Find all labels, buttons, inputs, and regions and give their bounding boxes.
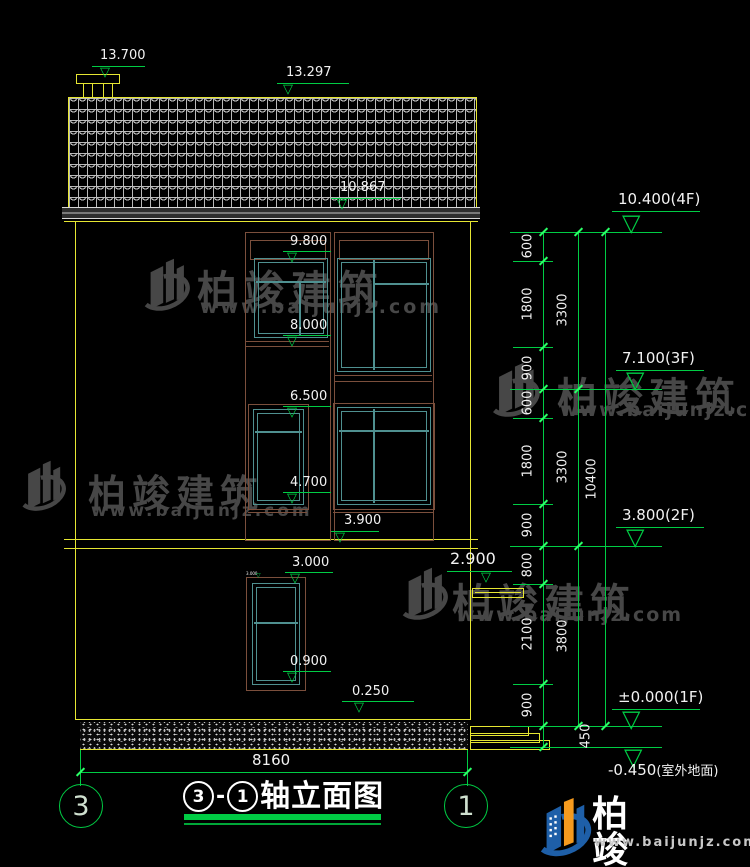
level-triangle-icon: ▽ <box>283 83 293 96</box>
entry-canopy-line <box>475 592 521 593</box>
level-label: 3.000 <box>292 556 329 569</box>
dim-line-subtotals <box>578 232 579 726</box>
level-label: 9.800 <box>290 235 327 248</box>
title-text: 轴立面图 <box>260 782 384 812</box>
sill-line <box>248 512 307 513</box>
dim-value: 8160 <box>252 753 290 768</box>
dim-line-segments <box>543 232 544 747</box>
level-triangle-icon: ▽ <box>287 406 297 419</box>
entry-step <box>470 740 550 750</box>
level-triangle-icon: ▽ <box>622 211 640 235</box>
entry-canopy <box>472 588 524 598</box>
window-mullion <box>375 283 429 285</box>
eave-fascia-band <box>62 207 480 219</box>
level-triangle-icon: ▽ <box>626 368 644 392</box>
axis-number: 3 <box>72 791 89 822</box>
wall-bottom-line <box>75 719 470 720</box>
level-triangle-icon: ▽ <box>287 492 297 505</box>
level-label: 4.700 <box>290 476 327 489</box>
window-mullion <box>255 431 302 433</box>
level-label: ±0.000(1F) <box>618 690 703 705</box>
level-underline <box>342 701 414 702</box>
spandrel-line <box>335 375 432 376</box>
title-axis-end-circle: 1 <box>227 781 258 812</box>
level-underline <box>447 571 512 572</box>
wall-left-edge <box>75 221 76 720</box>
dim-boundary-line <box>513 684 553 685</box>
window-mullion <box>373 260 375 370</box>
wall-right-edge <box>470 221 471 720</box>
plinth-hatch <box>80 722 468 750</box>
watermark-logo-icon <box>396 562 450 624</box>
watermark-url: www.baijunjz.com <box>560 399 750 421</box>
level-triangle-icon: ▽ <box>622 707 640 731</box>
level-label: 3.800(2F) <box>622 508 695 523</box>
title-axis-start: 3 <box>193 787 205 807</box>
window-mullion <box>254 622 298 624</box>
level-triangle-icon: ▽ <box>287 335 297 348</box>
title-underline-thin <box>184 823 381 825</box>
axis-number: 1 <box>457 791 474 822</box>
level-triangle-icon: ▽ <box>626 525 644 549</box>
dim-value: 900 <box>522 693 535 718</box>
level-triangle-icon: ▽ <box>290 572 300 585</box>
watermark-logo-icon <box>16 456 68 514</box>
spandrel-line <box>335 381 432 382</box>
level-label: 0.900 <box>290 655 327 668</box>
level-label: 10.867 <box>340 181 386 194</box>
dim-value: 900 <box>522 356 535 381</box>
watermark-logo-icon <box>138 254 192 314</box>
dim-extension-line <box>467 750 468 786</box>
level-label: 13.297 <box>286 66 332 79</box>
level-triangle-icon: ▽ <box>287 251 297 264</box>
level-triangle-icon: ▽ <box>481 571 491 584</box>
dim-value: 600 <box>522 234 535 259</box>
dim-boundary-line <box>513 504 553 505</box>
level-label: 8.000 <box>290 319 327 332</box>
drawing-title: 3 - 1 轴立面图 <box>183 781 384 812</box>
axis-bubble-1: 1 <box>444 784 488 828</box>
level-triangle-icon: ▽ <box>287 671 297 684</box>
wall-top-line <box>64 221 478 222</box>
level-label: 13.700 <box>100 49 146 62</box>
dim-subtotal: 3300 <box>557 450 570 483</box>
window-3f-right <box>337 258 431 372</box>
bay-b-head-band <box>339 240 429 260</box>
title-axis-start-circle: 3 <box>183 781 214 812</box>
window-mullion <box>373 409 375 503</box>
dim-line-total <box>605 232 606 726</box>
dim-line-width <box>80 772 468 773</box>
dim-boundary-line <box>513 347 553 348</box>
dim-subtotal: 3800 <box>557 619 570 652</box>
window-mullion <box>339 430 429 432</box>
level-label: 3.900 <box>344 514 381 527</box>
dim-value: 600 <box>522 391 535 416</box>
level-label: -0.450(室外地面) <box>608 763 719 778</box>
dim-below-grade: 450 <box>580 724 593 749</box>
axis-bubble-3: 3 <box>59 784 103 828</box>
dim-value: 1800 <box>522 287 535 320</box>
level-label: 7.100(3F) <box>622 351 695 366</box>
cad-elevation-canvas: 柏竣建筑 www.baijunjz.com 柏竣建筑 www.baijunjz.… <box>0 0 750 867</box>
brand-url: www.baijunjz.com <box>594 836 750 849</box>
dim-subtotal: 3300 <box>557 293 570 326</box>
brand-name: 柏竣建筑 <box>592 797 630 867</box>
level-label: 10.400(4F) <box>618 192 700 207</box>
level-triangle-icon: ▽ <box>337 198 347 211</box>
title-underline-thick <box>184 814 381 820</box>
dim-boundary-line <box>513 584 553 585</box>
level-suffix: (室外地面) <box>656 764 718 779</box>
brand-logo-icon <box>534 793 592 859</box>
window-sash <box>341 411 427 501</box>
dim-value: 1800 <box>522 444 535 477</box>
level-label: 0.250 <box>352 685 389 698</box>
window-2f-right <box>337 407 431 505</box>
mini-level-triangle-icon: ▽ <box>256 573 261 579</box>
window-mullion <box>256 281 326 283</box>
level-triangle-icon: ▽ <box>100 66 110 79</box>
level-triangle-icon: ▽ <box>354 701 364 714</box>
dim-value: 900 <box>522 513 535 538</box>
dim-extension-line <box>80 750 81 786</box>
dim-total: 10400 <box>586 458 599 499</box>
level-value: -0.450 <box>608 761 656 779</box>
level-triangle-icon: ▽ <box>335 531 345 544</box>
dim-boundary-line <box>513 418 553 419</box>
level-label: 6.500 <box>290 390 327 403</box>
window-sash <box>341 262 427 368</box>
dim-boundary-line <box>513 261 553 262</box>
level-label: 2.900 <box>450 551 496 567</box>
dim-value: 800 <box>522 553 535 578</box>
dim-value: 2100 <box>522 617 535 650</box>
title-axis-end: 1 <box>237 787 249 807</box>
title-separator: - <box>216 784 225 809</box>
roof-tile-pattern <box>68 97 477 209</box>
